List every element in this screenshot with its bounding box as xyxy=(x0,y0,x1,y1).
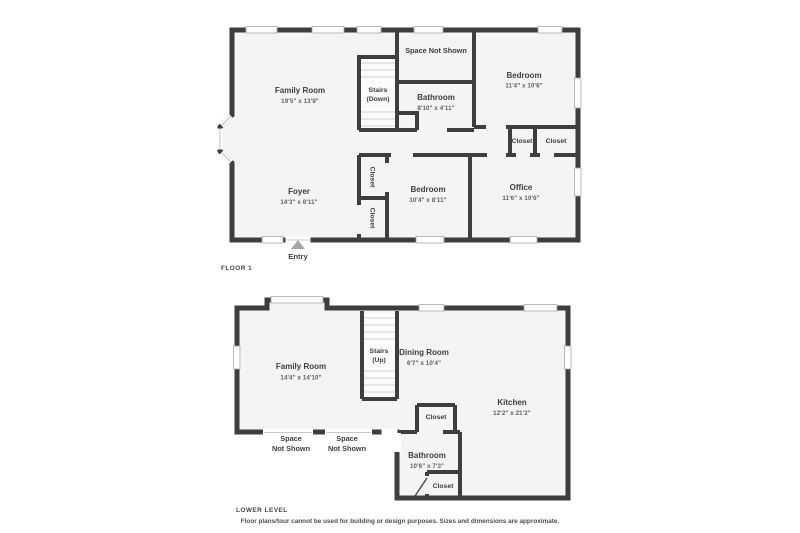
lower-level-stairs xyxy=(364,313,395,397)
lower-level-title: LOWER LEVEL xyxy=(236,507,288,514)
room-dims-kitchen: 12'2" x 21'2" xyxy=(493,410,531,417)
window xyxy=(271,297,323,304)
bathroom-door-opening xyxy=(394,433,402,452)
room-label-family-room: Family Room xyxy=(275,86,325,95)
room-label-closet-2: Closet xyxy=(433,483,455,490)
room-label-bedroom-top: Bedroom xyxy=(506,71,541,80)
window xyxy=(234,346,241,369)
floor1-title: FLOOR 1 xyxy=(221,265,252,272)
window xyxy=(575,78,582,108)
floorplan-page: Family Room 19'5" x 13'9" Stairs (Down) … xyxy=(0,0,800,533)
room-label-closet-2: Closet xyxy=(546,138,568,145)
room-dims-bathroom: 8'10" x 4'11" xyxy=(417,105,454,112)
room-label-dining-room: Dining Room xyxy=(399,348,449,357)
window xyxy=(510,237,537,244)
space-not-shown-2-line1: Space xyxy=(336,434,358,443)
window xyxy=(565,346,572,369)
space-not-shown-1-line1: Space xyxy=(280,434,302,443)
room-label-closet-3: Closet xyxy=(369,167,376,189)
room-label-stairs-direction: (Up) xyxy=(372,357,386,364)
room-label-bathroom: Bathroom xyxy=(408,451,446,460)
room-label-stairs: Stairs xyxy=(370,348,389,355)
room-dims-bedroom-top: 11'4" x 10'6" xyxy=(505,83,542,90)
window xyxy=(312,27,344,34)
room-label-bedroom-bottom: Bedroom xyxy=(410,185,445,194)
room-dims-office: 11'6" x 10'6" xyxy=(502,195,539,202)
space-not-shown-2-line2: Not Shown xyxy=(328,444,366,453)
window xyxy=(575,168,582,196)
room-label-office: Office xyxy=(510,183,533,192)
floor1-plan: Family Room 19'5" x 13'9" Stairs (Down) … xyxy=(220,27,581,273)
room-label-family-room: Family Room xyxy=(276,362,326,371)
lower-level-plan: Family Room 14'4" x 14'10" Stairs (Up) D… xyxy=(234,297,572,515)
window xyxy=(246,27,277,34)
window xyxy=(357,27,381,34)
room-label-closet-4: Closet xyxy=(369,208,376,230)
entry-label: Entry xyxy=(288,252,308,261)
room-label-closet-1: Closet xyxy=(426,414,448,421)
window xyxy=(414,27,443,34)
window xyxy=(524,305,557,312)
window xyxy=(262,237,283,244)
room-label-space-not-shown: Space Not Shown xyxy=(405,46,467,55)
window xyxy=(538,27,562,34)
floor-plan-canvas: Family Room 19'5" x 13'9" Stairs (Down) … xyxy=(0,0,800,533)
room-dims-bedroom-bottom: 10'4" x 8'11" xyxy=(409,197,446,204)
room-label-closet-1: Closet xyxy=(512,138,534,145)
room-dims-foyer: 14'3" x 8'11" xyxy=(280,199,317,206)
room-label-kitchen: Kitchen xyxy=(497,398,526,407)
room-label-stairs: Stairs xyxy=(369,87,388,94)
room-label-bathroom: Bathroom xyxy=(417,93,455,102)
room-label-stairs-direction: (Down) xyxy=(366,96,389,103)
footer-disclaimer: Floor plans/tour cannot be used for buil… xyxy=(241,518,560,525)
room-dims-family-room: 14'4" x 14'10" xyxy=(280,375,321,382)
window xyxy=(419,305,444,312)
window xyxy=(416,237,444,244)
room-dims-dining-room: 6'7" x 10'4" xyxy=(407,360,441,367)
room-dims-family-room: 19'5" x 13'9" xyxy=(281,98,319,105)
room-label-foyer: Foyer xyxy=(288,187,310,196)
space-not-shown-1-line2: Not Shown xyxy=(272,444,310,453)
room-dims-bathroom: 10'6" x 7'3" xyxy=(410,463,444,470)
